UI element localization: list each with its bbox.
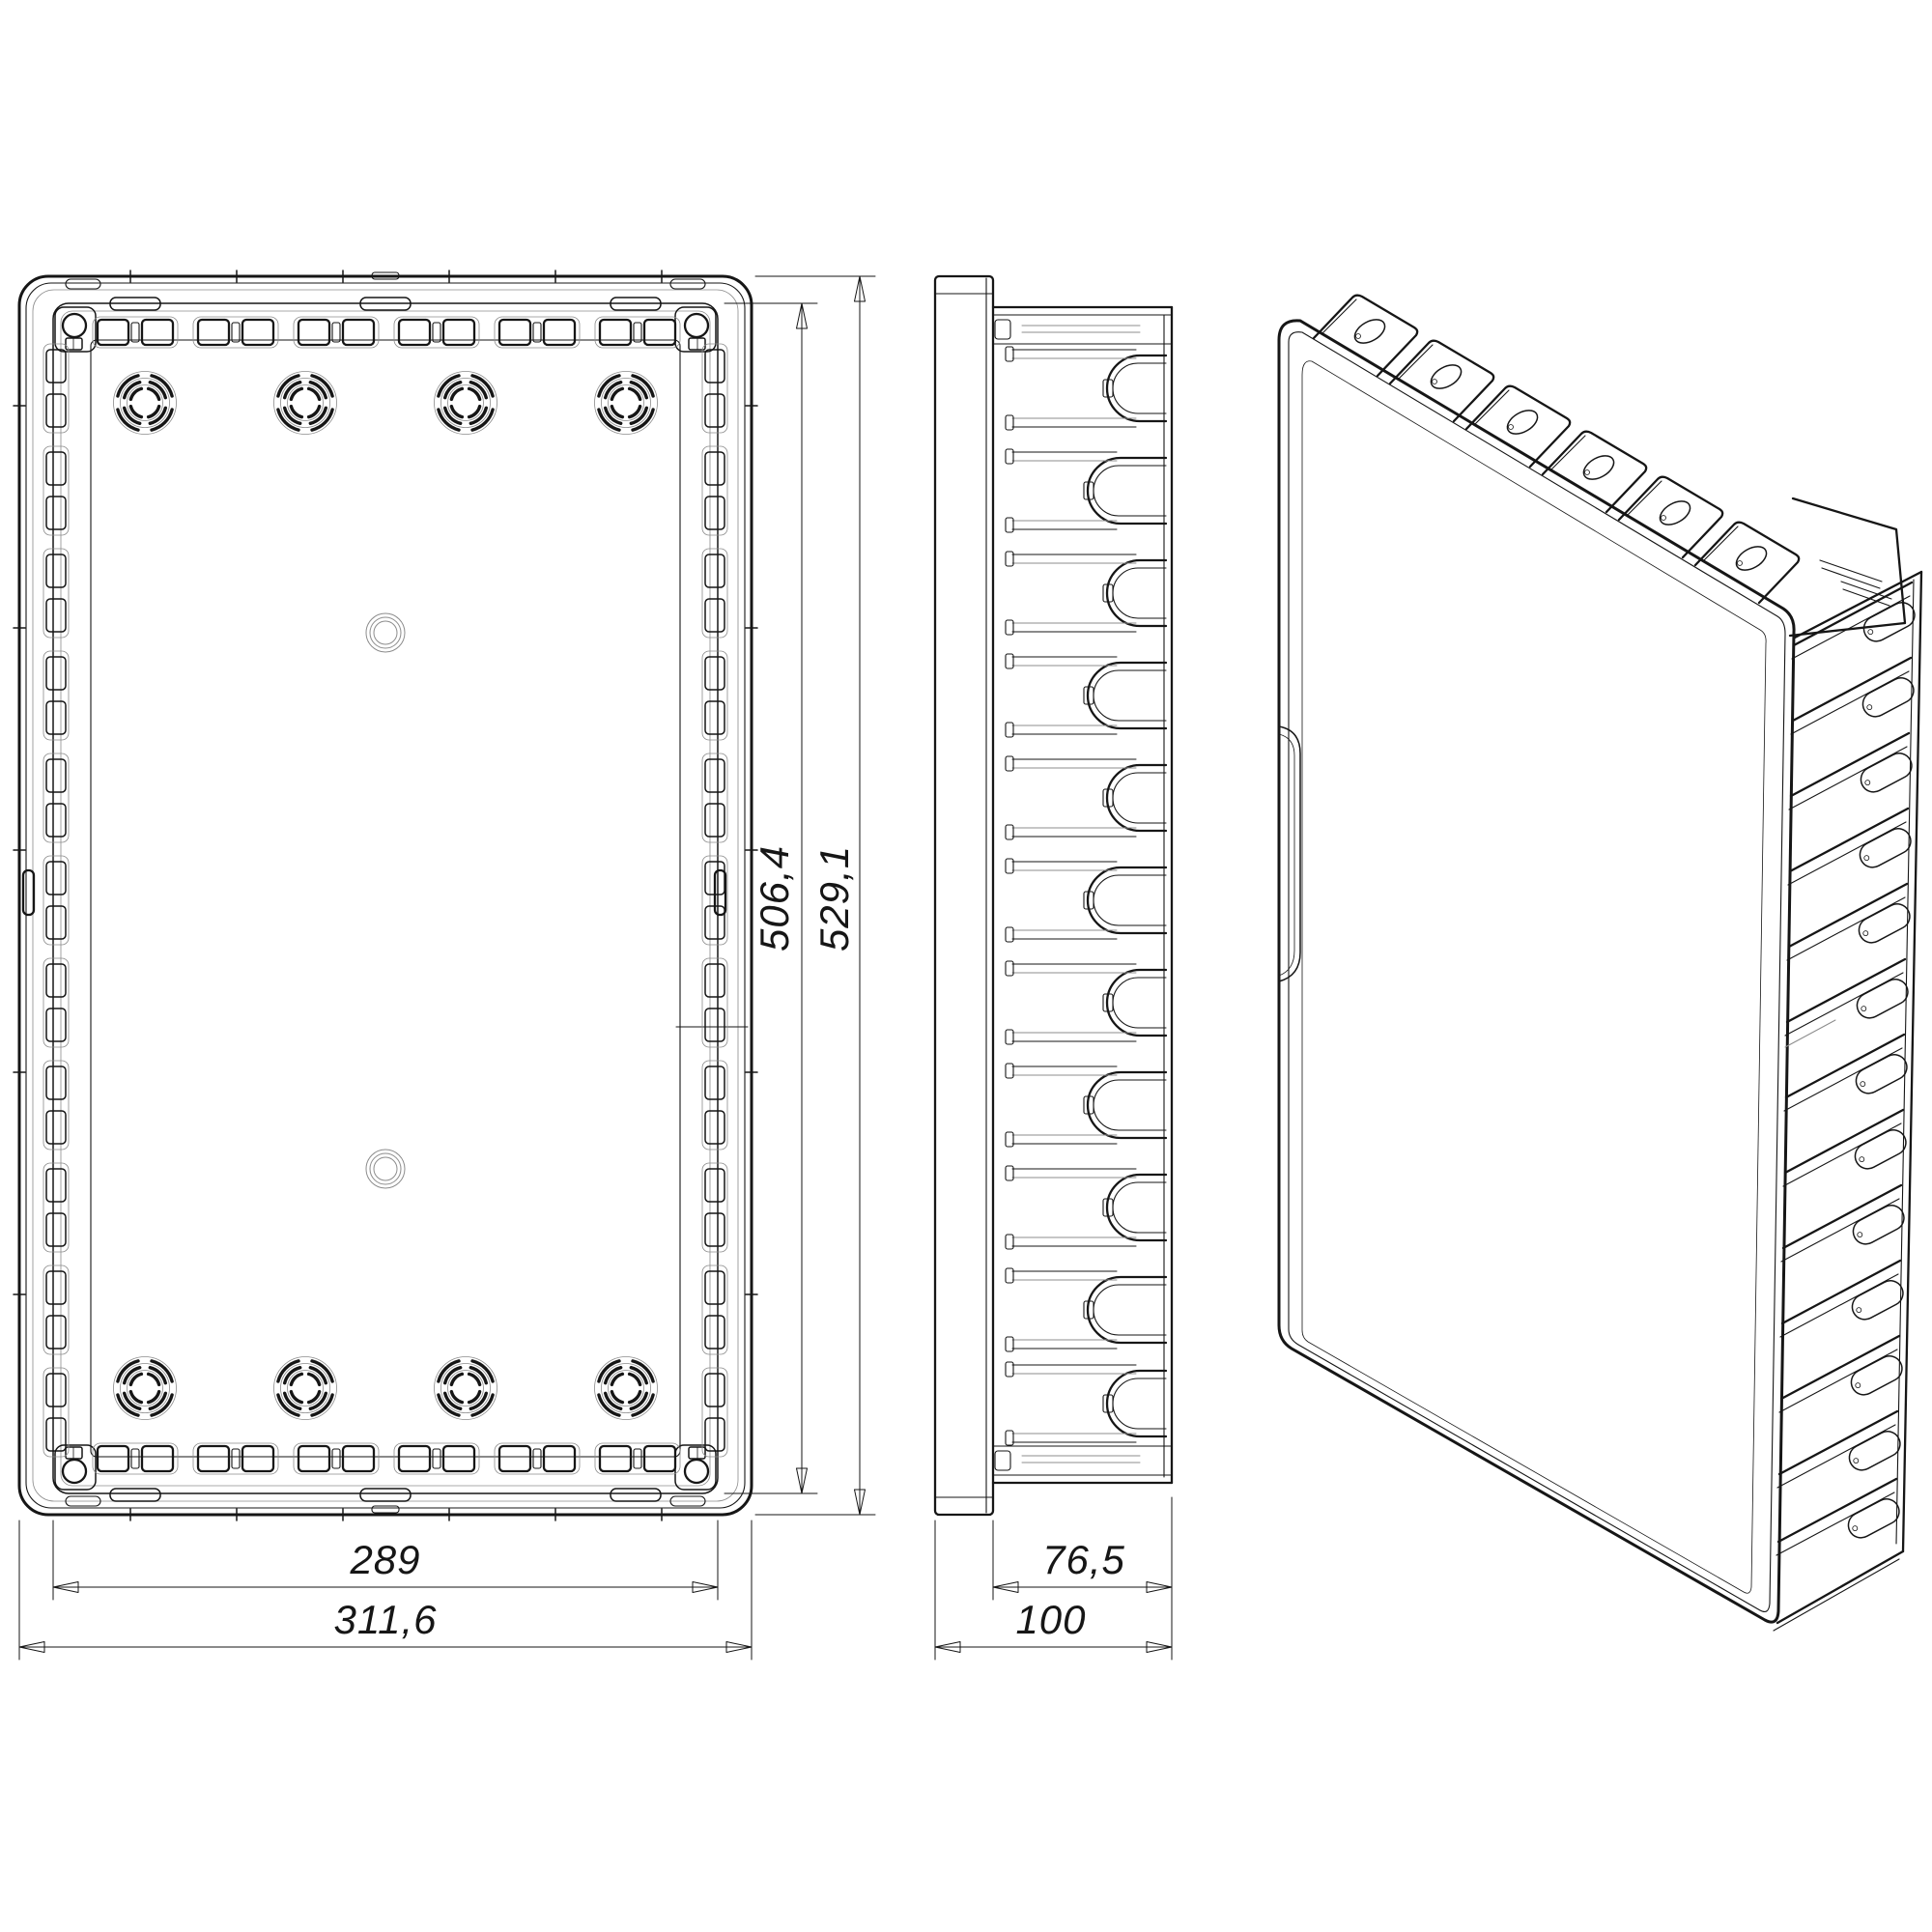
corner-block [1790,498,1905,636]
front-view [14,270,757,1520]
latch-mark [23,870,34,915]
seam-line [1785,1020,1835,1047]
side-view [935,276,1172,1515]
dim-height-body: 506,4 [752,845,797,952]
edge-tab [372,1506,399,1513]
rim-tab [611,1489,661,1501]
front-flange [935,276,993,1515]
dim-height-total: 529,1 [811,845,857,952]
edge-tab [66,279,100,289]
dim-width-total: 311,6 [334,1597,438,1642]
rim-tab [110,1489,160,1501]
dim-depth-total: 100 [1015,1597,1086,1642]
rim-tab [360,1489,411,1501]
dim-depth-body: 76,5 [1042,1537,1125,1582]
dimension-annotations: 289 311,6 506,4 529,1 76,5 100 [19,276,1172,1660]
edge-tab [670,279,705,289]
isometric-view [1279,296,1921,1631]
cover-panel [1279,321,1794,1622]
technical-drawing: 289 311,6 506,4 529,1 76,5 100 [0,0,1932,1932]
handle-recess [1279,726,1300,981]
band-bottom-edge [1777,1551,1903,1623]
dim-width-body: 289 [349,1537,420,1582]
